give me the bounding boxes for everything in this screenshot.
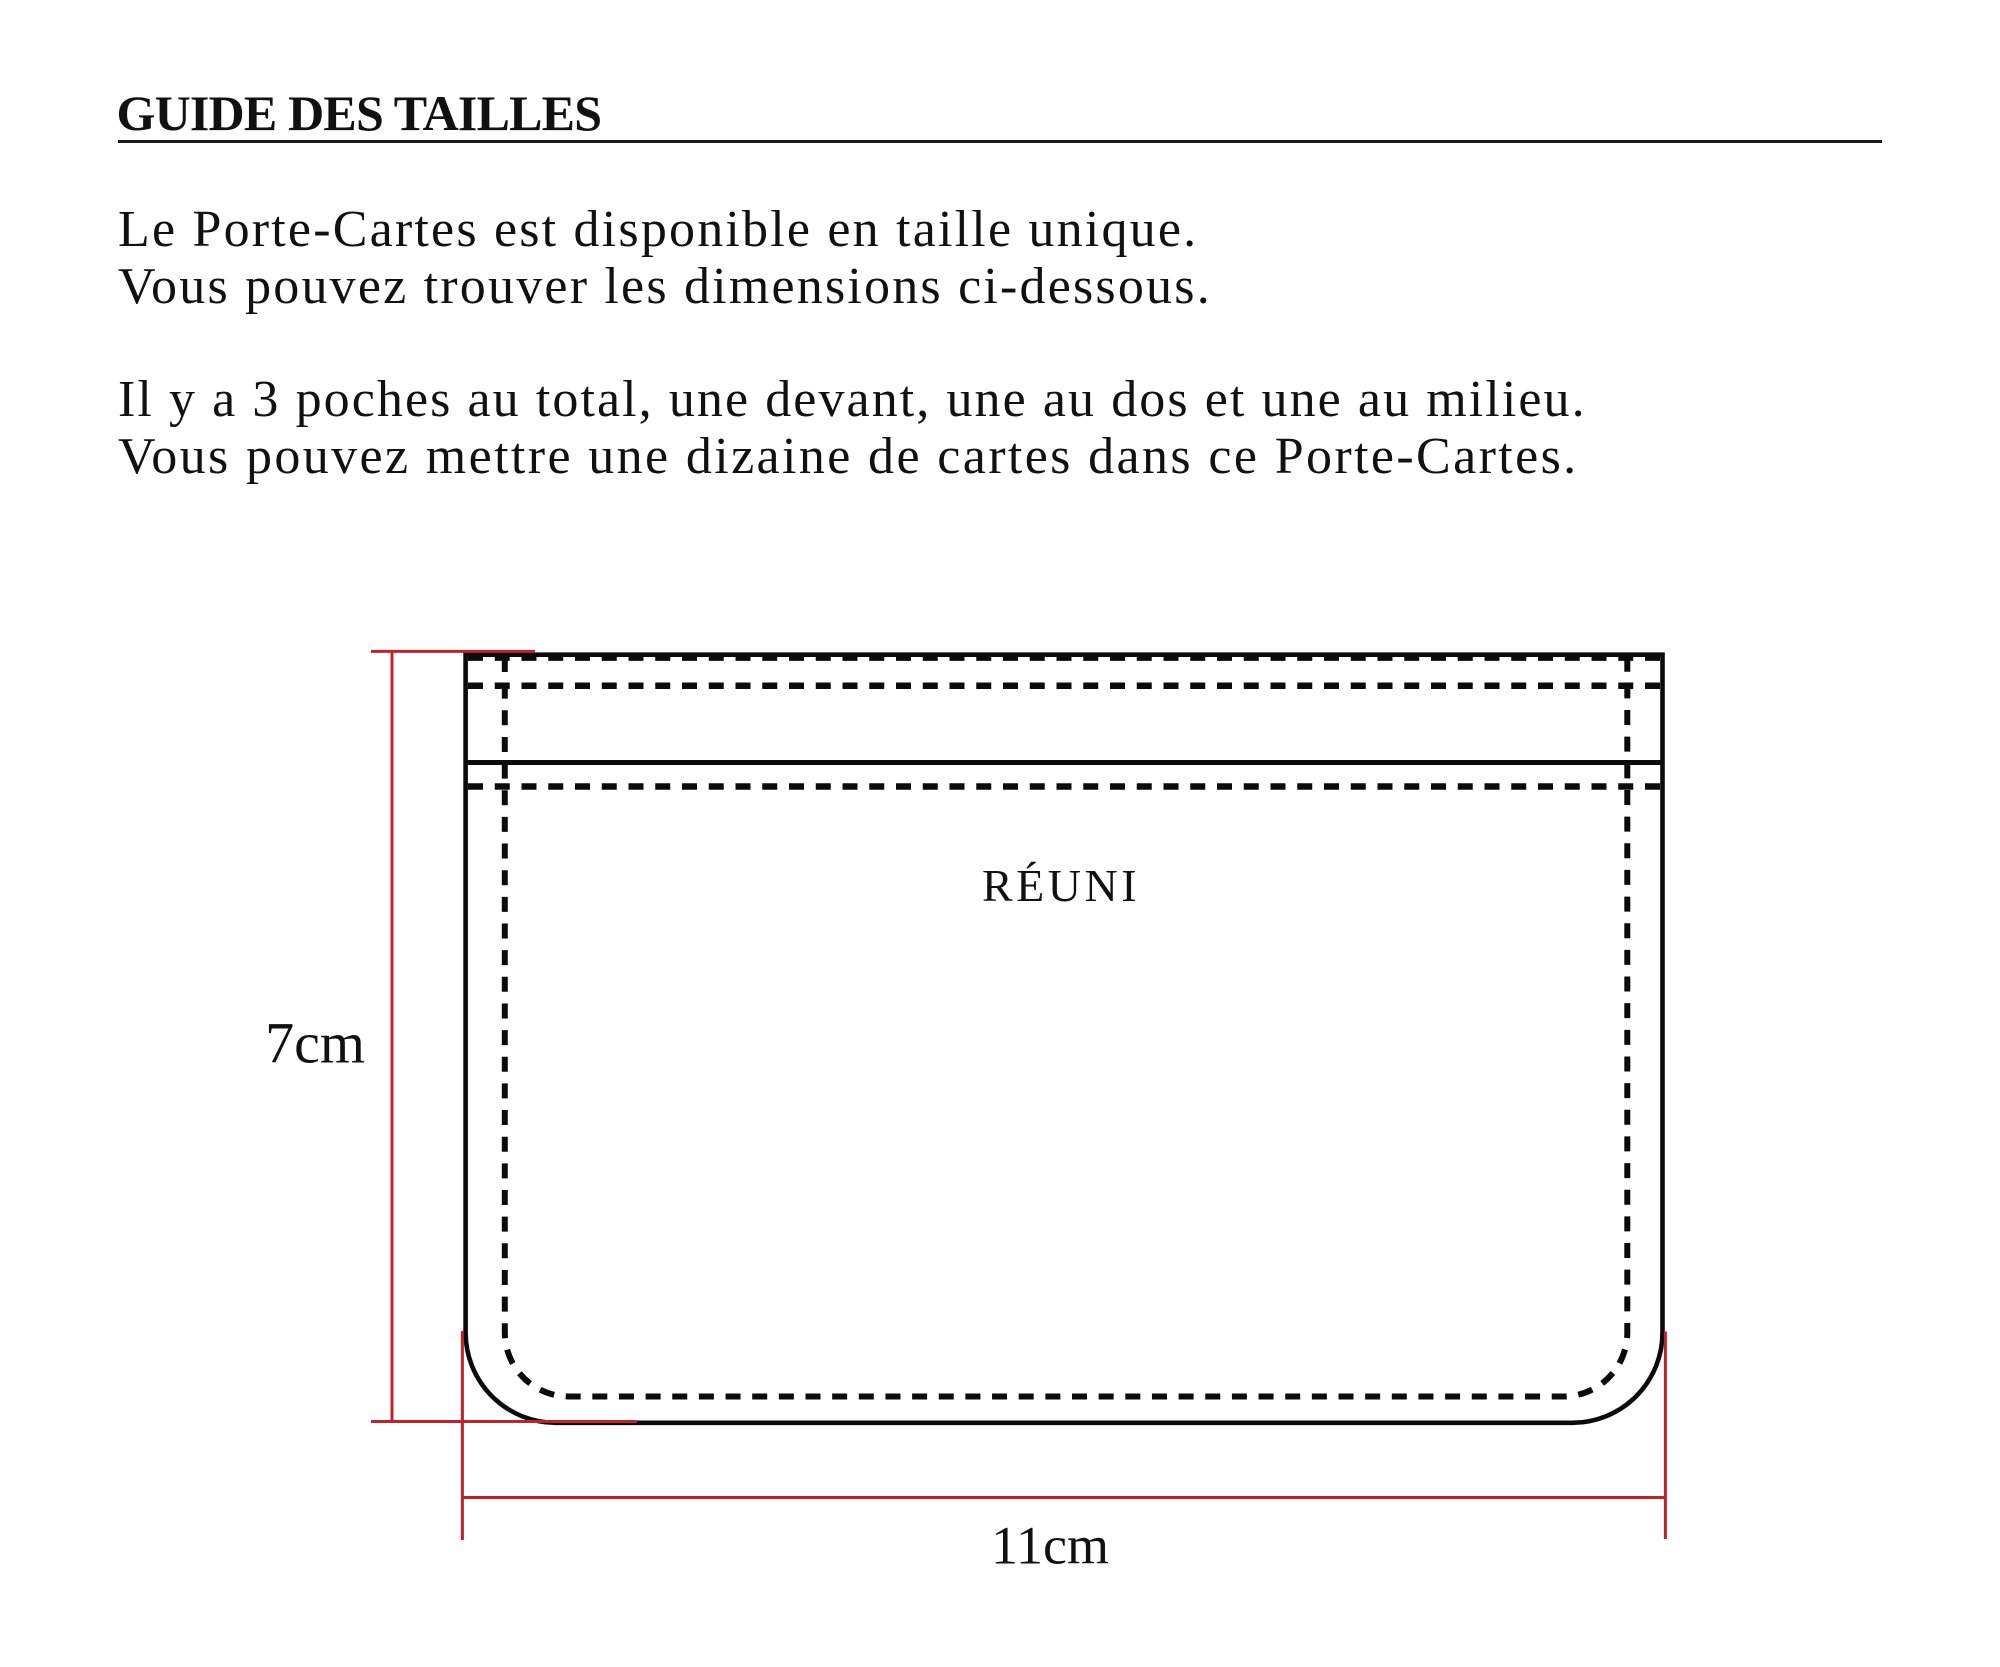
svg-text:7cm: 7cm: [265, 1011, 365, 1076]
svg-text:11cm: 11cm: [991, 1516, 1109, 1576]
svg-text:RÉUNI: RÉUNI: [982, 860, 1140, 911]
